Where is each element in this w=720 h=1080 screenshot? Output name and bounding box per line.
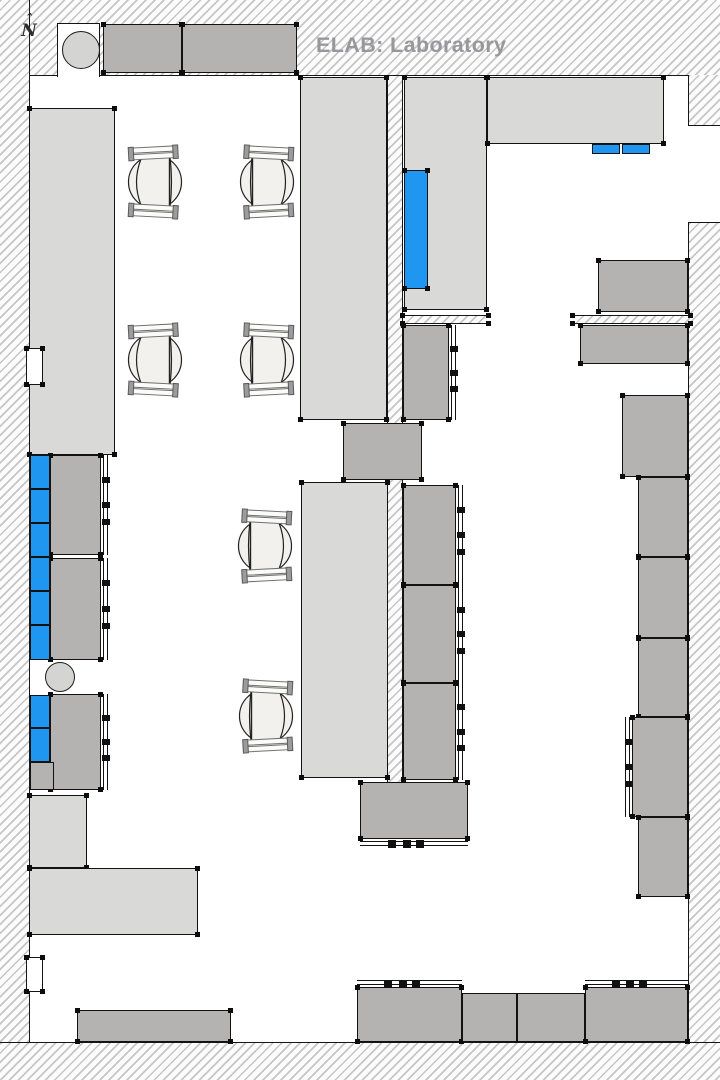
cabinet-right-4 xyxy=(638,477,688,557)
column-mid-left xyxy=(45,662,75,692)
cabinet-right-2 xyxy=(580,325,688,364)
chair-2 xyxy=(239,144,295,220)
floorplan-canvas: ˆ N ELAB: Laboratory xyxy=(0,0,720,1080)
cabinet-top-a xyxy=(103,24,182,73)
reagent-cell-7 xyxy=(30,695,50,728)
bench-bottom-4 xyxy=(585,987,688,1042)
cabinet-left-block1-unit-a xyxy=(50,455,101,555)
reagent-cell-3 xyxy=(30,523,50,557)
page-title: ELAB: Laboratory xyxy=(316,33,506,58)
equipment-blue-top-b xyxy=(622,144,650,154)
door-jamb-lower-left xyxy=(26,957,43,992)
reagent-cell-8 xyxy=(30,728,50,762)
bench-left xyxy=(29,108,115,455)
door-jamb-upper-left xyxy=(26,348,43,385)
bench-bottom-3 xyxy=(517,993,585,1042)
wall-opening-right xyxy=(688,125,720,223)
cabinet-mid-right-a xyxy=(403,485,456,585)
column-top-left xyxy=(62,31,100,69)
bench-bottom-left xyxy=(77,1010,231,1042)
wall-left xyxy=(0,0,30,1080)
cabinet-left-block2-base xyxy=(30,762,54,790)
wall-right-upper xyxy=(688,75,720,125)
chair-5 xyxy=(237,508,293,584)
reagent-cell-4 xyxy=(30,557,50,591)
cabinet-right-7 xyxy=(632,717,688,817)
north-arrow: ˆ N xyxy=(16,13,42,40)
cabinet-mid-right-b xyxy=(403,585,456,683)
north-arrow-label: N xyxy=(16,23,42,40)
wall-bottom xyxy=(0,1042,720,1080)
cabinet-left-block2-unit xyxy=(50,694,101,790)
equipment-blue-partition xyxy=(404,170,428,289)
reagent-cell-2 xyxy=(30,489,50,523)
cabinet-right-8 xyxy=(638,817,688,897)
cabinet-right-3 xyxy=(622,395,688,477)
cabinet-mid-lower xyxy=(360,782,468,839)
bench-bottom-1 xyxy=(357,987,462,1042)
cabinet-right-5 xyxy=(638,557,688,638)
reagent-cell-1 xyxy=(30,455,50,489)
cabinet-right-top xyxy=(598,260,688,312)
counter-lower-left-vertical xyxy=(29,795,87,868)
bench-bottom-2 xyxy=(462,993,517,1042)
chair-6 xyxy=(238,678,294,754)
reagent-cell-6 xyxy=(30,625,50,660)
cabinet-top-b xyxy=(182,24,297,73)
bench-top-right xyxy=(487,77,664,144)
cabinet-right-6 xyxy=(638,638,688,717)
chair-4 xyxy=(239,322,295,398)
chair-1 xyxy=(127,144,183,220)
equipment-blue-top-a xyxy=(592,144,620,154)
wall-strip-right xyxy=(573,315,690,324)
cabinet-below-strip-left xyxy=(403,325,449,420)
bench-top-center xyxy=(300,77,387,420)
cabinet-left-block1-unit-b xyxy=(50,558,101,660)
counter-lower-left-horizontal xyxy=(29,868,198,935)
chair-3 xyxy=(127,322,183,398)
reagent-cell-5 xyxy=(30,591,50,625)
cabinet-mid-right-c xyxy=(403,683,456,780)
bench-middle xyxy=(301,482,388,778)
wall-right-lower xyxy=(688,223,720,1042)
cabinet-connector-mid xyxy=(343,423,422,480)
